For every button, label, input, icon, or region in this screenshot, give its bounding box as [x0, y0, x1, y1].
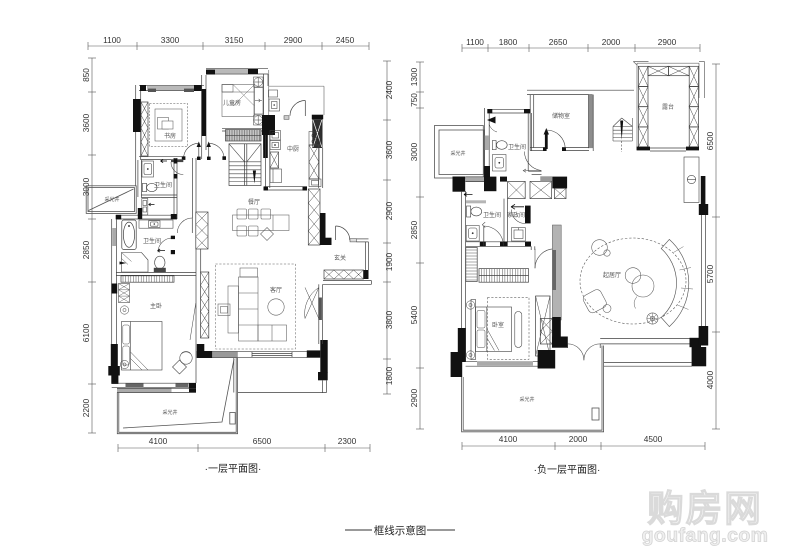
- svg-text:2850: 2850: [81, 240, 91, 259]
- svg-text:卫生间: 卫生间: [154, 181, 172, 189]
- svg-text:2200: 2200: [81, 398, 91, 417]
- svg-text:3000: 3000: [409, 142, 419, 161]
- svg-text:6500: 6500: [253, 436, 272, 446]
- svg-text:采光井: 采光井: [450, 150, 465, 157]
- svg-text:2900: 2900: [384, 201, 394, 220]
- svg-text:采光井: 采光井: [519, 396, 534, 403]
- svg-text:goufang.com: goufang.com: [642, 525, 769, 547]
- svg-text:客厅: 客厅: [270, 286, 282, 294]
- svg-text:6100: 6100: [81, 323, 91, 342]
- svg-text:采光井: 采光井: [162, 409, 177, 416]
- svg-text:1100: 1100: [103, 35, 121, 45]
- svg-text:卫生间: 卫生间: [143, 237, 161, 245]
- svg-text:家政间: 家政间: [507, 211, 525, 219]
- svg-text:2900: 2900: [658, 37, 677, 47]
- svg-text:750: 750: [409, 93, 419, 107]
- svg-text:2850: 2850: [409, 220, 419, 239]
- svg-text:1800: 1800: [384, 366, 394, 385]
- svg-text:2900: 2900: [409, 388, 419, 407]
- svg-text:1800: 1800: [499, 37, 518, 47]
- svg-text:儿童房: 儿童房: [223, 99, 241, 107]
- svg-text:4100: 4100: [149, 436, 168, 446]
- svg-text:2400: 2400: [384, 80, 394, 99]
- svg-text:餐厅: 餐厅: [248, 198, 260, 206]
- svg-text:3800: 3800: [384, 310, 394, 329]
- svg-text:中厨: 中厨: [287, 145, 299, 153]
- svg-text:4100: 4100: [499, 434, 518, 444]
- svg-text:书房: 书房: [164, 132, 176, 140]
- svg-text:3600: 3600: [81, 113, 91, 132]
- svg-text:850: 850: [81, 68, 91, 82]
- svg-text:·一层平面图·: ·一层平面图·: [205, 463, 262, 475]
- svg-text:2900: 2900: [284, 35, 303, 45]
- svg-text:卧室: 卧室: [492, 321, 504, 329]
- svg-text:2450: 2450: [336, 35, 355, 45]
- svg-text:采光井: 采光井: [104, 196, 119, 203]
- svg-text:4000: 4000: [705, 370, 715, 389]
- svg-text:卫生间: 卫生间: [508, 143, 526, 151]
- svg-text:1100: 1100: [466, 37, 484, 47]
- svg-text:1300: 1300: [409, 67, 419, 86]
- svg-text:储物室: 储物室: [552, 112, 570, 120]
- svg-text:1900: 1900: [384, 252, 394, 271]
- svg-text:主卧: 主卧: [150, 302, 162, 310]
- svg-text:2300: 2300: [338, 436, 357, 446]
- svg-text:玄关: 玄关: [334, 254, 346, 262]
- svg-text:卫生间: 卫生间: [483, 211, 501, 219]
- svg-text:·负一层平面图·: ·负一层平面图·: [534, 463, 601, 476]
- svg-text:6500: 6500: [705, 131, 715, 150]
- svg-text:框线示意图: 框线示意图: [374, 524, 427, 537]
- svg-text:5700: 5700: [705, 264, 715, 283]
- svg-text:露台: 露台: [662, 103, 674, 111]
- svg-text:3150: 3150: [225, 35, 244, 45]
- svg-text:2000: 2000: [602, 37, 621, 47]
- svg-text:起居厅: 起居厅: [603, 271, 621, 279]
- svg-text:5400: 5400: [409, 305, 419, 324]
- svg-text:4500: 4500: [644, 434, 663, 444]
- svg-text:3300: 3300: [161, 35, 180, 45]
- svg-text:2000: 2000: [569, 434, 588, 444]
- svg-text:3600: 3600: [384, 140, 394, 159]
- svg-text:2650: 2650: [549, 37, 568, 47]
- svg-text:购房网: 购房网: [647, 488, 763, 529]
